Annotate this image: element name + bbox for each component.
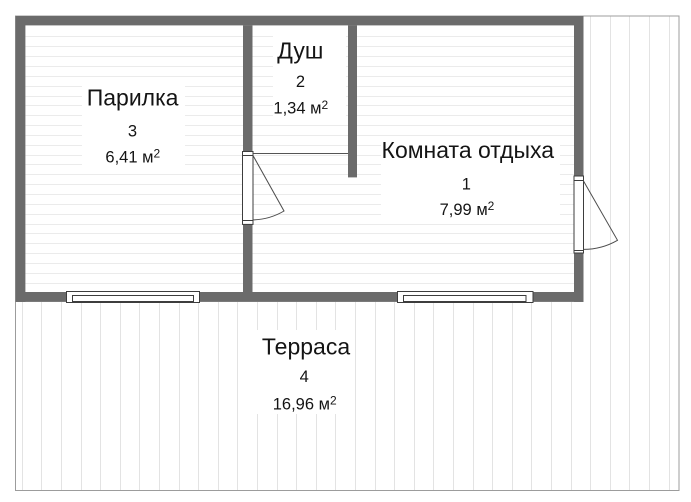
svg-text:3: 3	[128, 122, 137, 140]
svg-text:1: 1	[462, 176, 471, 194]
svg-text:2: 2	[296, 73, 305, 91]
svg-text:16,96 м2: 16,96 м2	[273, 393, 337, 413]
svg-text:7,99 м2: 7,99 м2	[440, 199, 495, 219]
svg-text:6,41 м2: 6,41 м2	[105, 147, 160, 167]
svg-text:Парилка: Парилка	[87, 84, 179, 110]
svg-text:1,34 м2: 1,34 м2	[273, 98, 328, 118]
svg-text:Терраса: Терраса	[262, 333, 350, 359]
svg-text:Душ: Душ	[277, 38, 323, 64]
svg-text:4: 4	[300, 368, 309, 386]
svg-text:Комната отдыха: Комната отдыха	[382, 137, 555, 163]
